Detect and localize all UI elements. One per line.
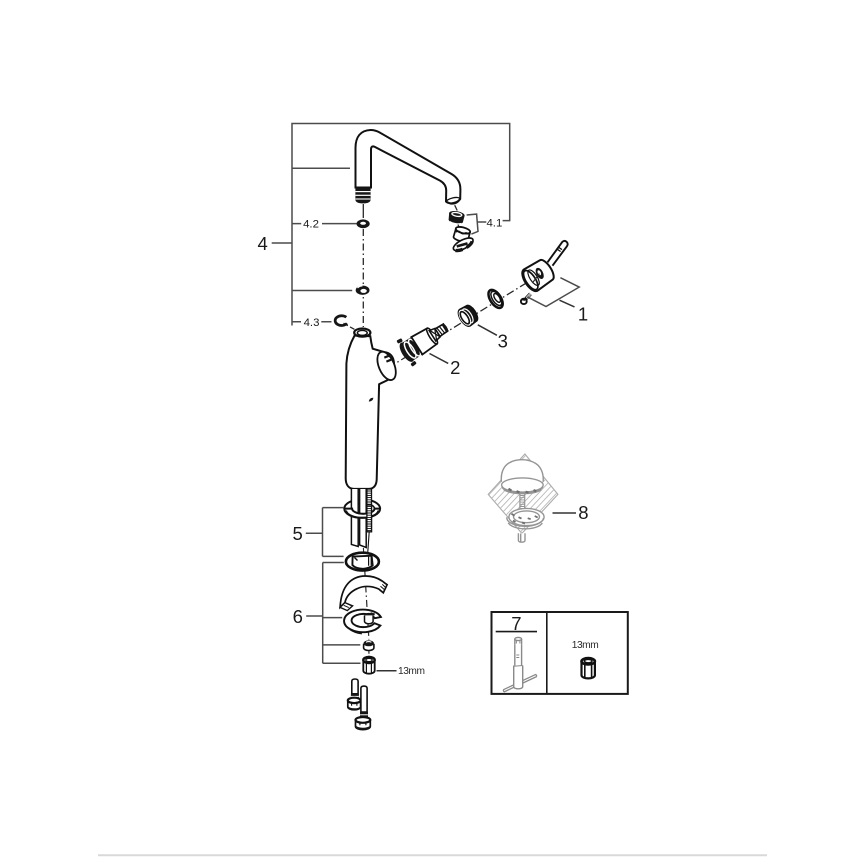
svg-text:4.2: 4.2: [303, 218, 319, 230]
svg-text:13mm: 13mm: [398, 666, 425, 677]
svg-text:4.3: 4.3: [304, 317, 320, 329]
svg-text:13mm: 13mm: [572, 640, 599, 651]
svg-text:8: 8: [578, 502, 588, 523]
svg-text:2: 2: [450, 357, 460, 378]
svg-text:1: 1: [578, 303, 588, 324]
svg-text:5: 5: [293, 523, 303, 544]
svg-text:3: 3: [498, 330, 508, 351]
svg-text:4: 4: [257, 233, 267, 254]
svg-text:4.1: 4.1: [486, 217, 502, 229]
svg-text:6: 6: [293, 606, 303, 627]
